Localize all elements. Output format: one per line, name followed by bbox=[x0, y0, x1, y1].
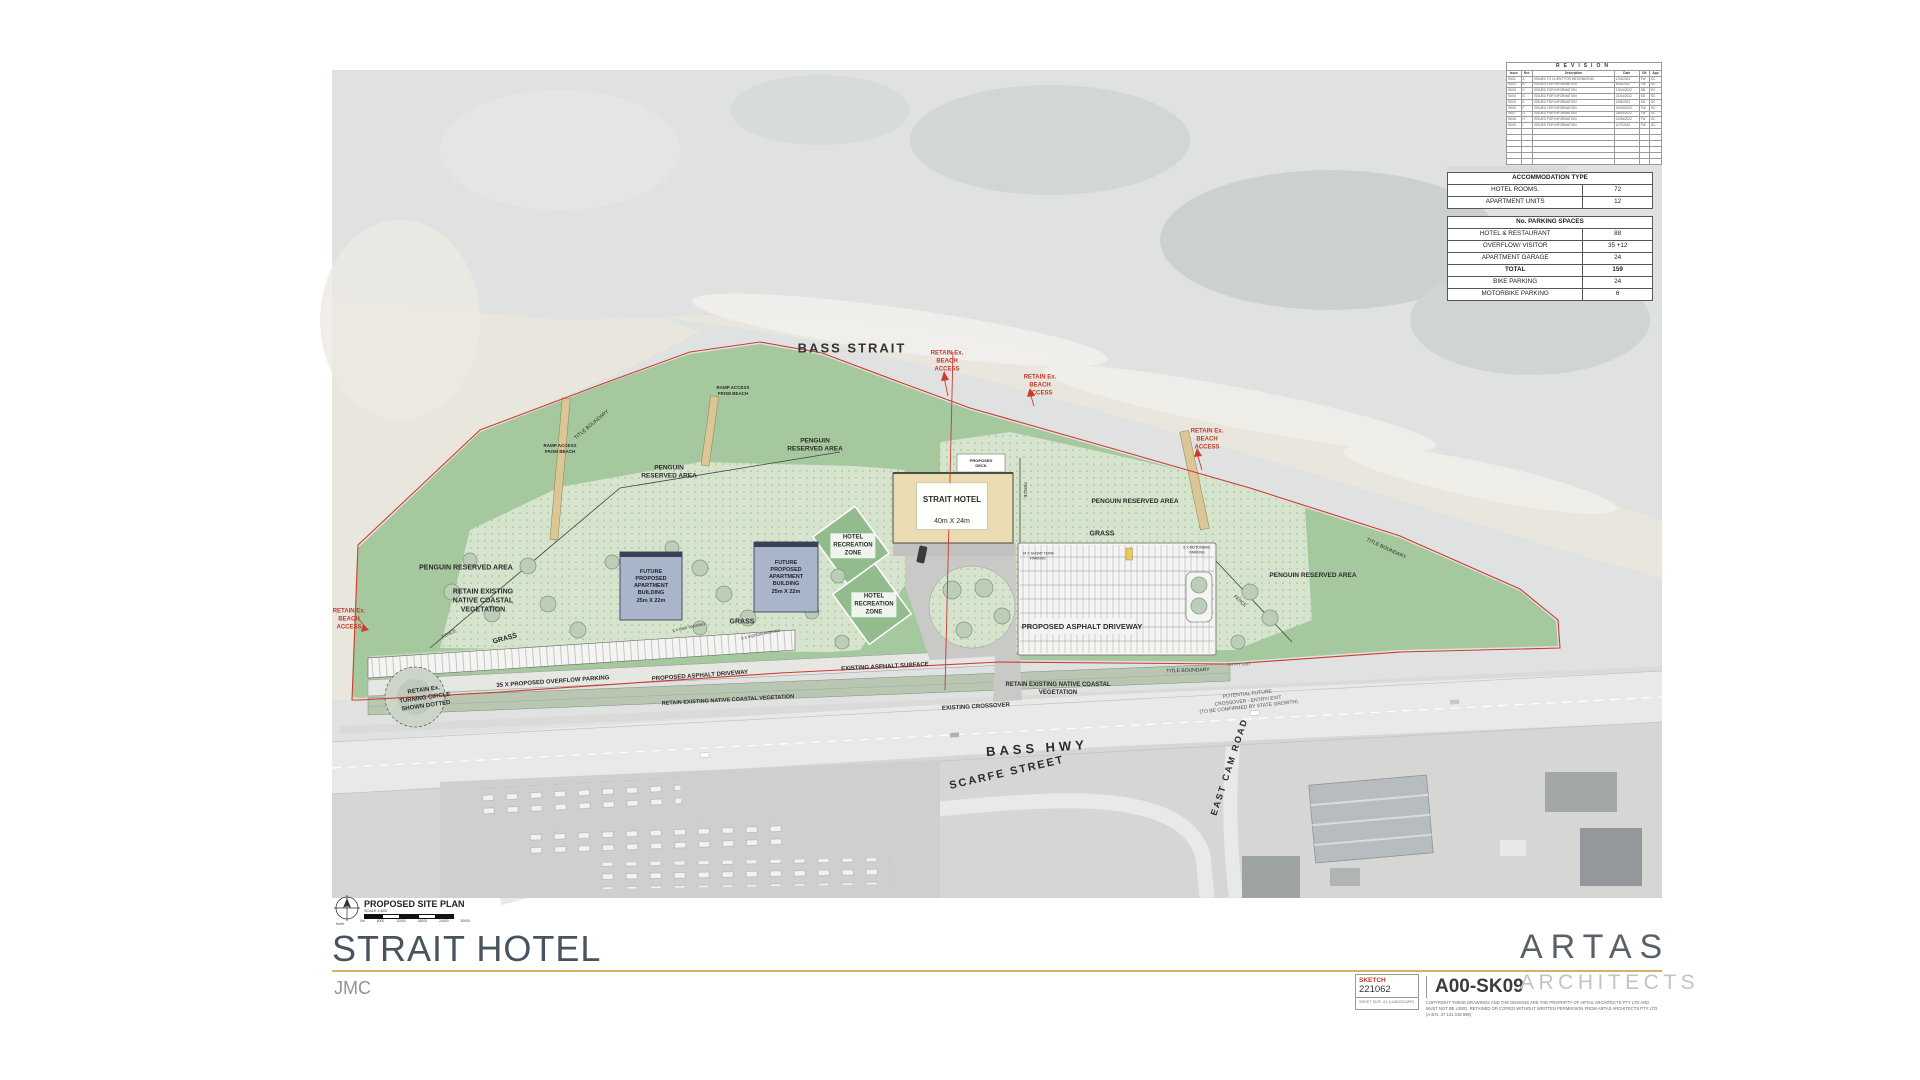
label-retain-beach-access-1: RETAIN Ex. BEACH ACCESS bbox=[931, 350, 964, 373]
drawing-number: A00-SK09 bbox=[1426, 976, 1524, 998]
revision-table: REVISION IssueRevDescriptionDateDftApp S… bbox=[1506, 62, 1662, 165]
table-cap-bar bbox=[1447, 166, 1567, 171]
label-short-term-parking: 24 X SHORT TERM PARKING bbox=[1022, 551, 1053, 560]
label-apartment-2: FUTURE PROPOSED APARTMENT BUILDING 25m X… bbox=[769, 560, 803, 596]
label-ramp-access-1: RAMP ACCESS FROM BEACH bbox=[716, 385, 749, 397]
label-apartment-1: FUTURE PROPOSED APARTMENT BUILDING 25m X… bbox=[634, 569, 668, 605]
parking-title: No. PARKING SPACES bbox=[1448, 217, 1653, 229]
north-label: North bbox=[336, 922, 344, 926]
sketch-label: SKETCH bbox=[1356, 975, 1418, 984]
title-rule bbox=[332, 970, 1662, 972]
label-penguin-left: PENGUIN RESERVED AREA bbox=[419, 563, 513, 572]
table-row: BIKE PARKING24 bbox=[1448, 277, 1653, 289]
label-penguin-right-2: PENGUIN RESERVED AREA bbox=[1269, 572, 1356, 580]
plan-name: PROPOSED SITE PLAN bbox=[364, 899, 465, 909]
label-driveway-main: PROPOSED ASPHALT DRIVEWAY bbox=[1022, 622, 1143, 632]
sheet-size: SHEET SIZE: A1 (LANDSCAPE) bbox=[1356, 998, 1418, 1006]
revision-title: REVISION bbox=[1507, 63, 1662, 71]
plan-scale: SCALE 1:600 bbox=[364, 909, 387, 913]
client-name: JMC bbox=[334, 978, 371, 999]
label-grass-3: GRASS bbox=[1090, 529, 1115, 538]
scale-bar-ticks: 0m600012000180002400030000 bbox=[360, 919, 470, 923]
label-penguin-center-2: PENGUIN RESERVED AREA bbox=[787, 438, 843, 455]
project-title: STRAIT HOTEL bbox=[332, 928, 601, 970]
table-row: APARTMENT GARAGE24 bbox=[1448, 253, 1653, 265]
label-retain-beach-access-2: RETAIN Ex. BEACH ACCESS bbox=[1024, 374, 1057, 397]
hotel-size-text: 40m X 24m bbox=[934, 518, 970, 525]
label-proposed-deck: PROPOSED DECK bbox=[970, 458, 993, 468]
label-grass-2: GRASS bbox=[730, 617, 755, 626]
copyright-text: COPYRIGHT THESE DRAWINGS AND THE DESIGNS… bbox=[1426, 1000, 1662, 1018]
north-arrow-icon bbox=[334, 895, 360, 921]
label-penguin-center-1: PENGUIN RESERVED AREA bbox=[641, 465, 697, 482]
table-row: HOTEL & RESTAURANT88 bbox=[1448, 229, 1653, 241]
table-row: MOTORBIKE PARKING6 bbox=[1448, 289, 1653, 301]
accommodation-table: ACCOMMODATION TYPE HOTEL ROOMS.72APARTME… bbox=[1447, 172, 1653, 209]
label-rec-zone-2: HOTEL RECREATION ZONE bbox=[851, 592, 896, 617]
label-veg-bottom-2: RETAIN EXISTING NATIVE COASTAL VEGETATIO… bbox=[1005, 682, 1110, 698]
table-row: HOTEL ROOMS.72 bbox=[1448, 185, 1653, 197]
label-retain-veg-left: RETAIN EXISTING NATIVE COASTAL VEGETATIO… bbox=[453, 587, 513, 614]
label-rec-zone-1: HOTEL RECREATION ZONE bbox=[830, 533, 875, 558]
firm-logo-name: ARTAS bbox=[1520, 930, 1662, 964]
existing-carpark bbox=[440, 760, 940, 898]
label-fence-2: FENCE bbox=[1022, 482, 1028, 497]
label-bass-strait: BASS STRAIT bbox=[798, 341, 907, 358]
job-number: 221062 bbox=[1356, 984, 1418, 998]
label-retain-beach-access-4: RETAIN Ex. BEACH ACCESS bbox=[333, 608, 366, 631]
table-row: OVERFLOW/ VISITOR35 +12 bbox=[1448, 241, 1653, 253]
sketch-box: SKETCH 221062 SHEET SIZE: A1 (LANDSCAPE) bbox=[1355, 974, 1419, 1010]
label-entry-exit: ENTRY EXIT bbox=[1227, 661, 1250, 666]
label-hotel: STRAIT HOTEL 40m X 24m bbox=[917, 483, 987, 529]
label-retain-beach-access-3: RETAIN Ex. BEACH ACCESS bbox=[1191, 428, 1224, 451]
parking-table: No. PARKING SPACES HOTEL & RESTAURANT88O… bbox=[1447, 216, 1653, 301]
table-row: APARTMENT UNITS12 bbox=[1448, 197, 1653, 209]
drawing-sheet: BASS STRAIT RETAIN Ex. BEACH ACCESS RETA… bbox=[0, 0, 1920, 1080]
table-row: TOTAL159 bbox=[1448, 265, 1653, 277]
accommodation-title: ACCOMMODATION TYPE bbox=[1448, 173, 1653, 185]
label-motorbike-parking: 6 X MOTORBIKE PARKING bbox=[1183, 545, 1210, 554]
label-ramp-access-2: RAMP ACCESS FROM BEACH bbox=[543, 443, 576, 455]
hotel-name-text: STRAIT HOTEL bbox=[923, 496, 981, 505]
firm-logo-type: ARCHITECTS bbox=[1520, 972, 1662, 993]
label-penguin-right-1: PENGUIN RESERVED AREA bbox=[1091, 498, 1178, 506]
